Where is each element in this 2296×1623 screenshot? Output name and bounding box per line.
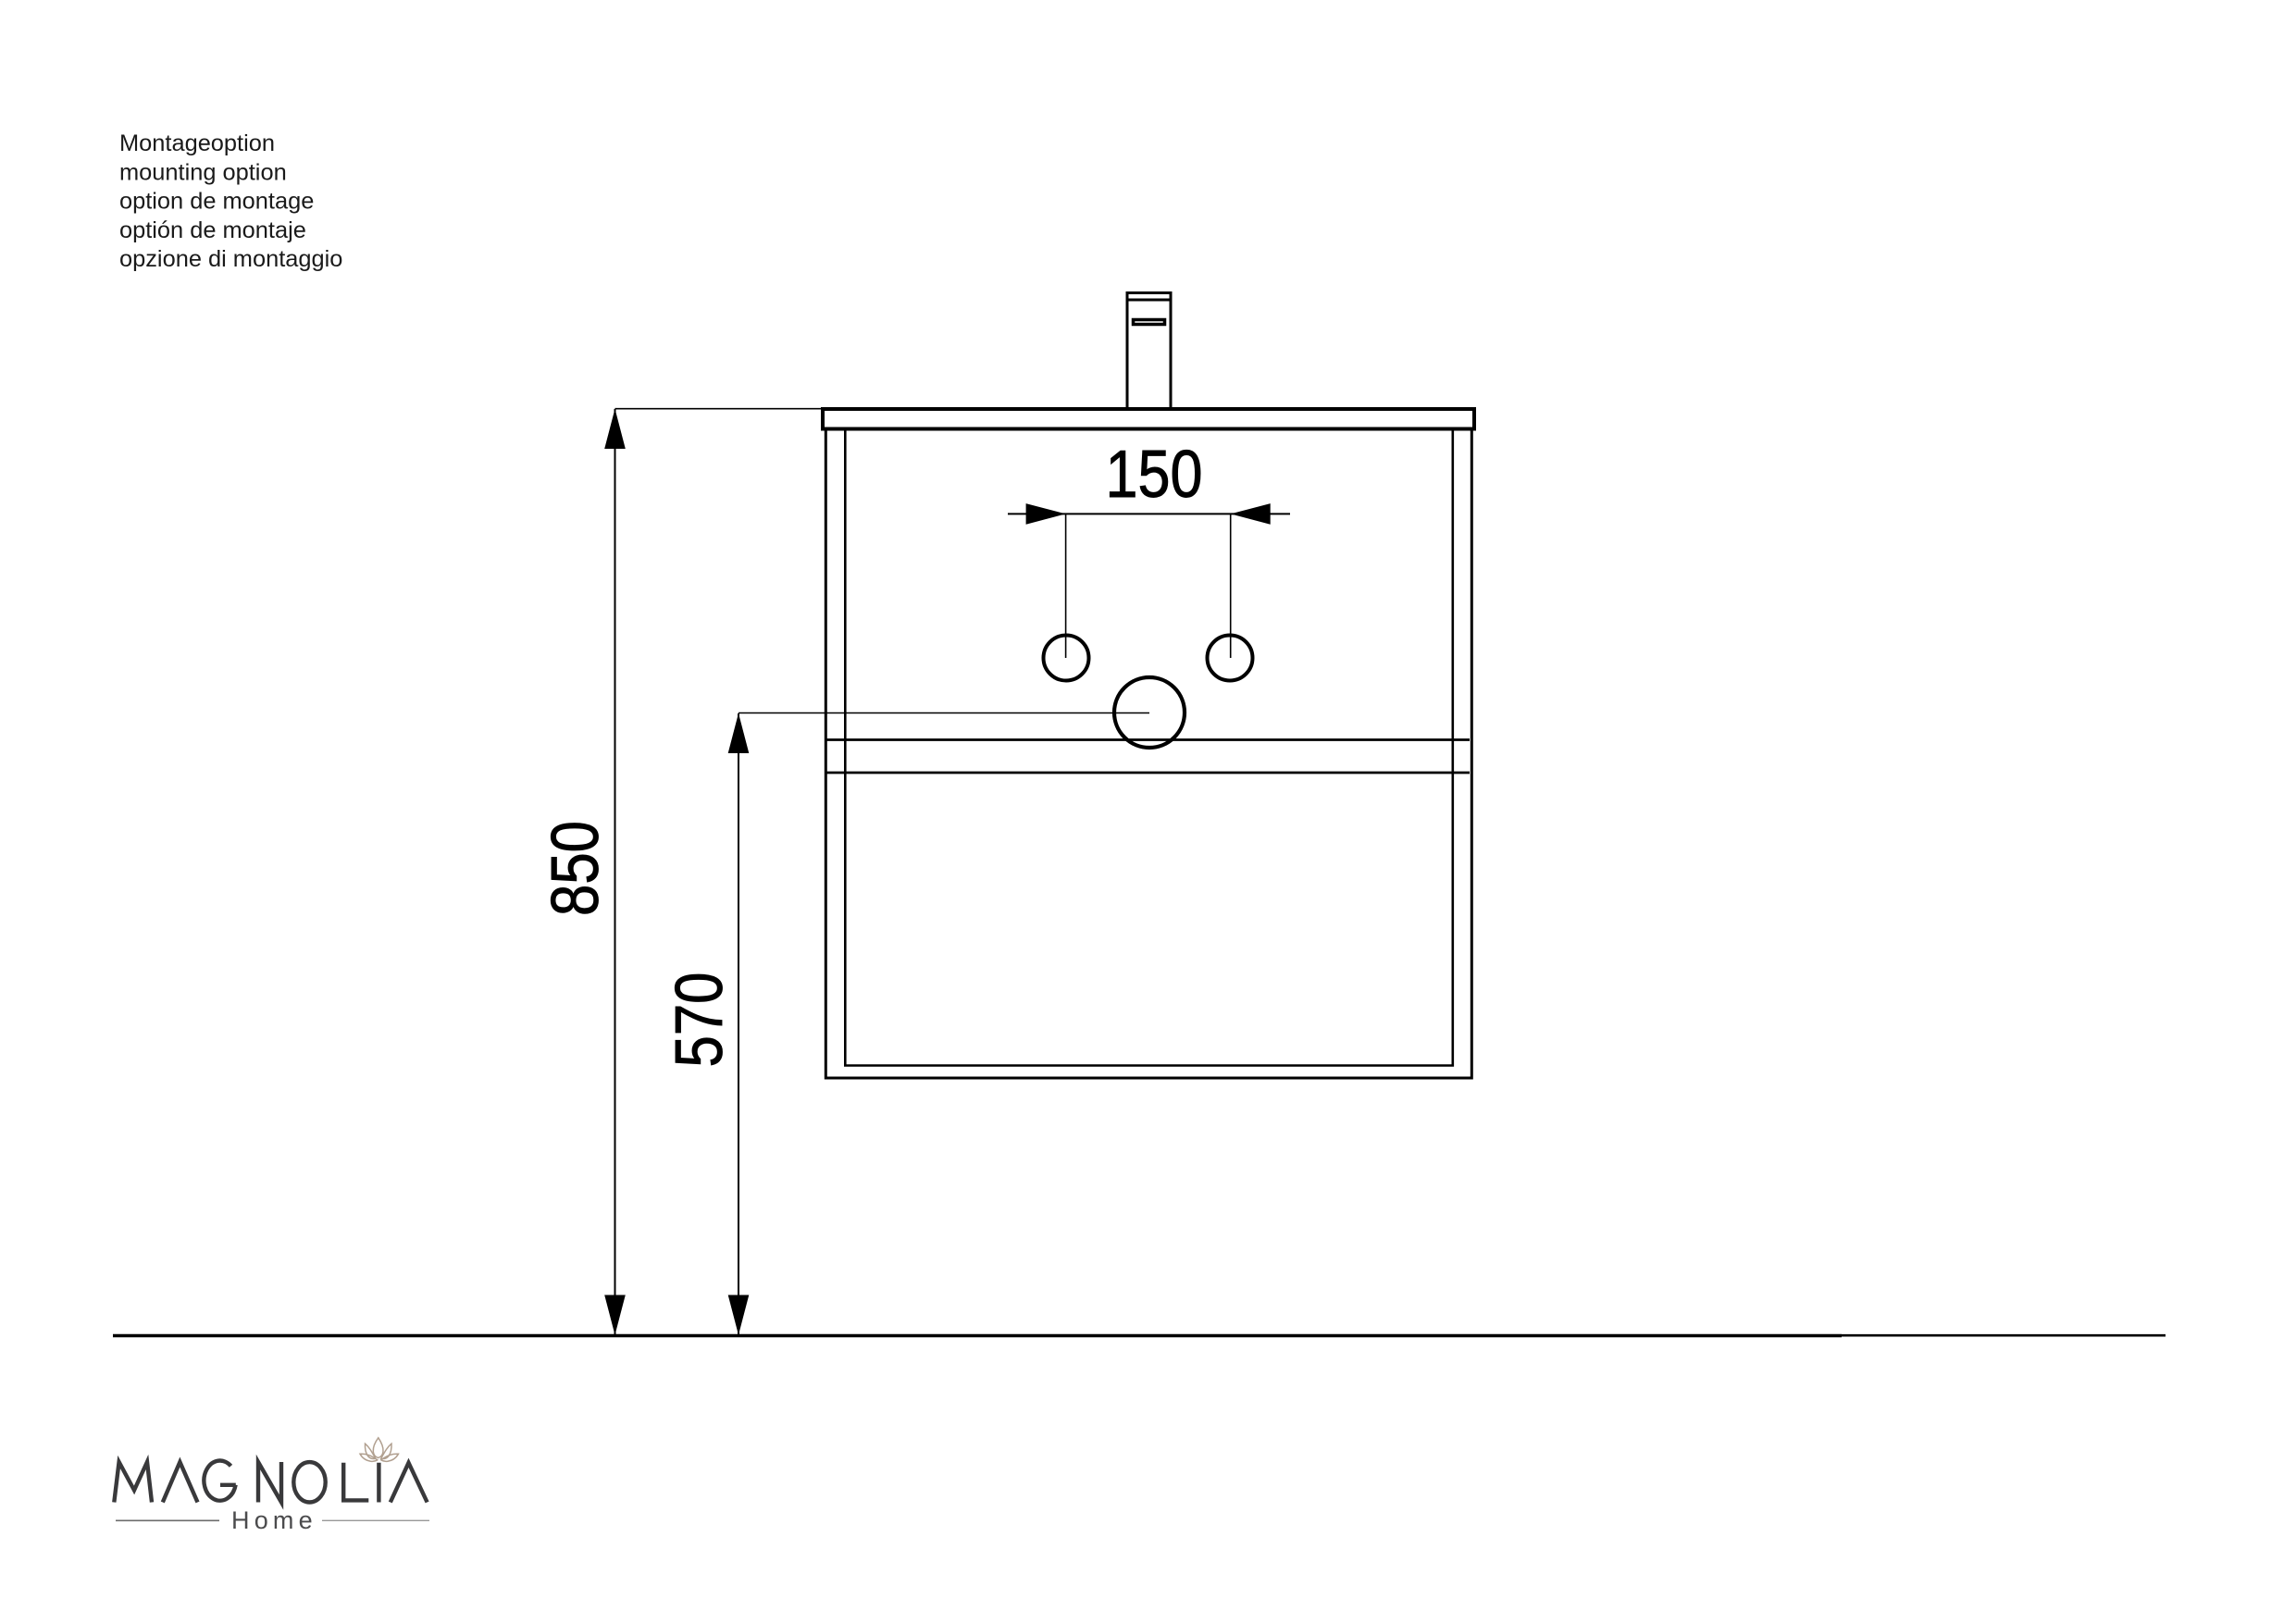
svg-text:Montageoption: Montageoption	[119, 130, 275, 156]
svg-text:opzione di montaggio: opzione di montaggio	[119, 246, 342, 272]
svg-text:optión de montaje: optión de montaje	[119, 217, 306, 243]
svg-text:850: 850	[539, 821, 613, 916]
svg-text:150: 150	[1106, 438, 1203, 512]
svg-text:mounting option: mounting option	[119, 159, 287, 185]
svg-text:570: 570	[663, 973, 737, 1068]
svg-text:Home: Home	[231, 1506, 317, 1534]
svg-text:option de montage: option de montage	[119, 189, 314, 215]
